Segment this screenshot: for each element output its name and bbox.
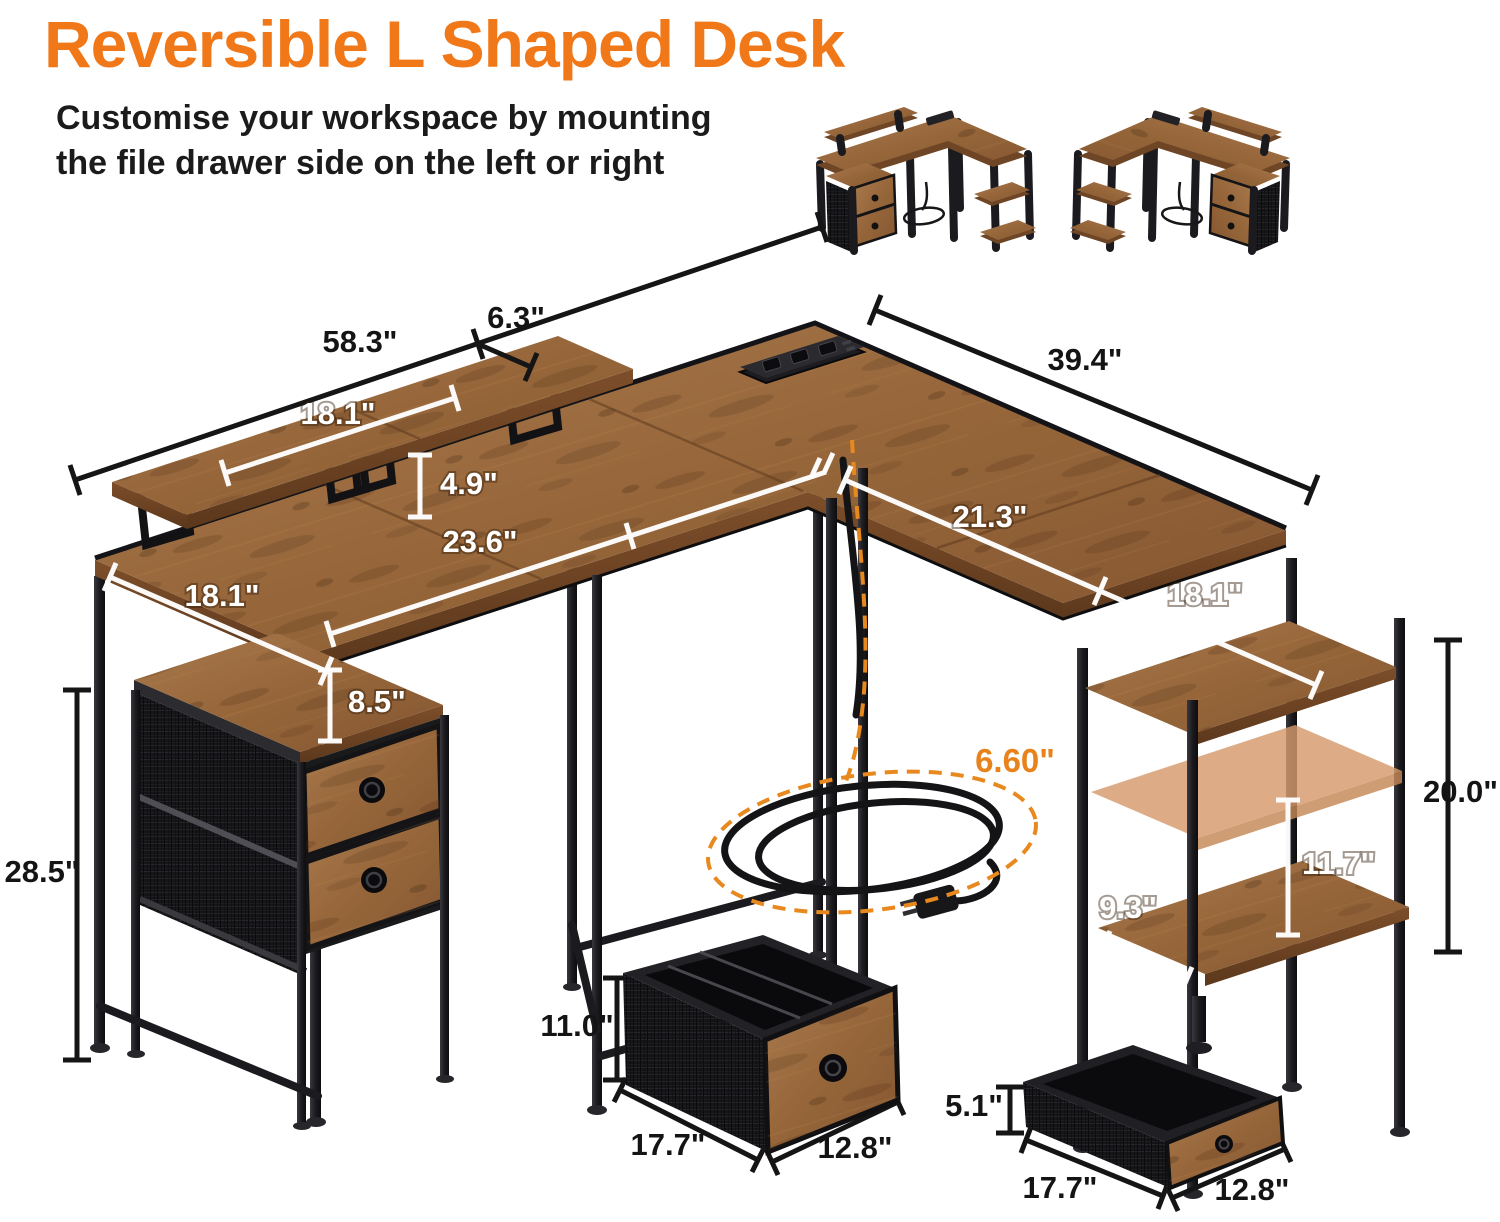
dim-small-drawer-height: 5.1": [945, 1088, 1003, 1123]
dim-shelf-column-height: 20.0": [1423, 774, 1498, 809]
dim-riser-height: 4.9": [440, 466, 498, 501]
frame-stretcher-rear: [576, 882, 822, 948]
dim-small-drawer-width: 12.8": [1214, 1172, 1289, 1207]
drawer-handle-bottom: [361, 867, 387, 893]
dim-bottom-shelf-depth: 9.3": [1099, 890, 1157, 925]
dim-small-drawer-depth: 17.7": [1022, 1170, 1097, 1205]
drawer-handle-top: [359, 777, 385, 803]
dim-wing-depth: 18.1": [1167, 577, 1242, 612]
dim-desk-depth-left: 18.1": [184, 578, 259, 613]
desk-leg-fragment: [1192, 996, 1206, 1042]
dim-desk-height: 28.5": [4, 854, 79, 889]
dim-wing-inner-span: 21.3": [952, 499, 1027, 534]
dim-pedestal-clearance: 8.5": [348, 684, 406, 719]
dim-shelf-bottom-gap: 11.7": [1302, 846, 1375, 881]
file-drawer-handle: [819, 1054, 847, 1082]
pedestal-leg-rear: [131, 690, 140, 1052]
desk-leg-rear-left: [94, 576, 105, 1046]
dim-desk-front-span: 23.6": [442, 524, 517, 559]
dim-power-cord-length: 6.60": [975, 742, 1055, 779]
pedestal-leg-front: [297, 762, 306, 1124]
dim-wing-total-length: 39.4": [1047, 342, 1122, 377]
thumbnail-desk-drawer-right: [1070, 107, 1290, 254]
thumbnail-desk-drawer-left: [816, 107, 1036, 254]
dim-riser-depth: 6.3": [487, 300, 545, 335]
product-infographic: Reversible L Shaped Desk Customise your …: [0, 0, 1500, 1222]
dim-file-drawer-depth: 17.7": [630, 1127, 705, 1162]
dim-riser-segment: 18.1": [300, 396, 375, 431]
desk-diagram: 58.3" 6.3" 39.4" 18.1" 4.9" 18.1" 23.6" …: [0, 0, 1500, 1222]
dim-file-drawer-width: 12.8": [817, 1130, 892, 1165]
shelf-ghost-adjustable: [1091, 725, 1402, 838]
pedestal-leg-right: [440, 715, 449, 1077]
dim-desk-total-length: 58.3": [322, 324, 397, 359]
dim-file-drawer-height: 11.0": [540, 1008, 613, 1043]
small-drawer-handle: [1215, 1135, 1233, 1153]
leg-foot: [1186, 1042, 1212, 1054]
small-drawer-box: [1023, 996, 1283, 1188]
cable-coil-inner: [754, 791, 998, 901]
shelf-post-outer-right: [1394, 618, 1405, 1130]
